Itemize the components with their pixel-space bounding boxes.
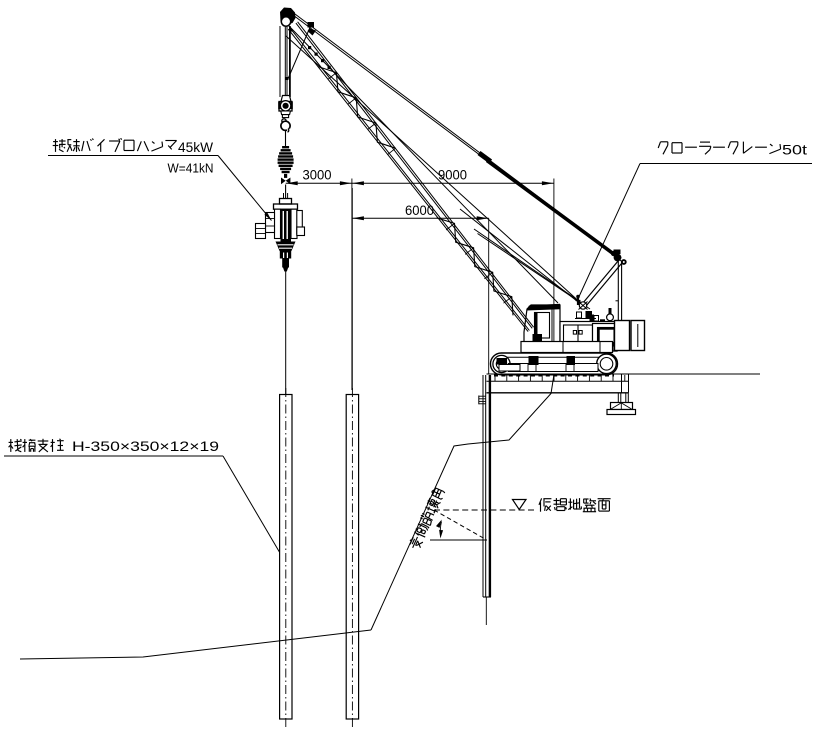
svg-text:W=41kN: W=41kN [168, 161, 214, 176]
svg-text:50t: 50t [782, 142, 807, 158]
svg-text:6000: 6000 [405, 202, 434, 218]
svg-text:H-350×350×12×19: H-350×350×12×19 [72, 439, 219, 454]
svg-text:9000: 9000 [438, 167, 467, 183]
svg-text:45kW: 45kW [178, 139, 214, 155]
svg-text:3000: 3000 [303, 167, 332, 183]
